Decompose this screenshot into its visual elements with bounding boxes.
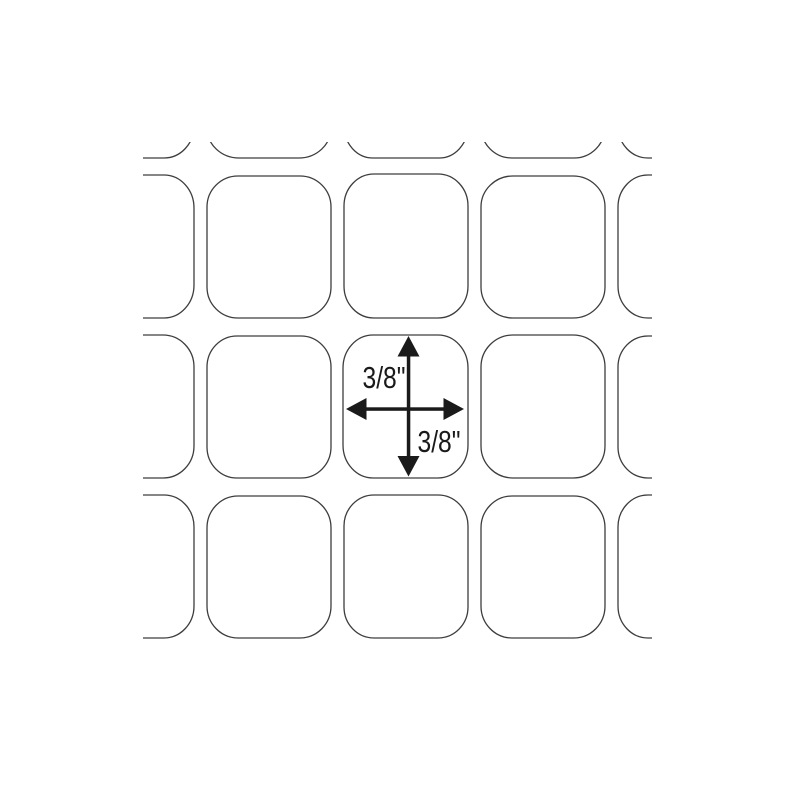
mesh-dimension-diagram: 3/8" 3/8"	[0, 0, 800, 800]
product-image: 3/8" 3/8"	[0, 0, 800, 800]
dimension-label-top: 3/8"	[363, 360, 406, 395]
dimension-label-bottom: 3/8"	[418, 424, 461, 459]
canvas-background	[0, 0, 800, 800]
